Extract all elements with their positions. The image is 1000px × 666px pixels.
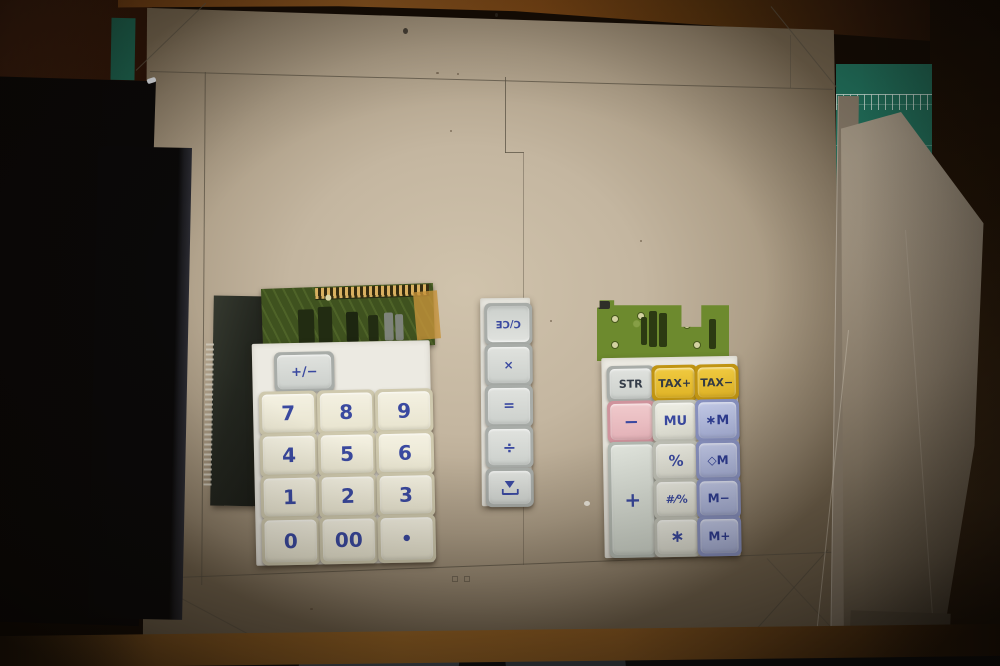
speck — [550, 320, 552, 322]
key-label: 9 — [378, 391, 431, 430]
speck — [450, 130, 452, 132]
speck — [495, 13, 498, 17]
key-label: × — [488, 347, 530, 383]
key-label: 00 — [322, 518, 375, 561]
key-minus: − — [607, 400, 656, 443]
keypad-left: +/− 7 8 9 4 5 6 1 2 3 0 00 • — [252, 340, 435, 566]
keypad-right: STR TAX+ TAX− − MU ∗M + % ◇M #⁄% M− ∗ M+ — [601, 356, 740, 558]
key-label: • — [380, 517, 433, 560]
key-label: #⁄% — [656, 482, 697, 517]
pcb-slot — [659, 313, 667, 347]
key-str: STR — [606, 365, 655, 402]
chip — [395, 314, 404, 340]
key-00: 00 — [319, 515, 378, 564]
pcb-slot — [709, 319, 716, 349]
key-label: 1 — [264, 478, 317, 517]
key-label: + — [611, 444, 655, 555]
speck — [310, 608, 313, 610]
speck — [452, 576, 458, 582]
key-2: 2 — [318, 473, 377, 518]
key-1: 1 — [260, 475, 319, 520]
key-m-plus: M+ — [697, 516, 742, 557]
speck — [464, 576, 470, 582]
key-asterisk-m: ∗M — [695, 399, 740, 442]
key-equals: = — [485, 385, 533, 427]
key-8: 8 — [317, 389, 376, 434]
speck — [640, 240, 642, 242]
key-tax-minus: TAX− — [694, 364, 739, 401]
key-percent: % — [653, 441, 700, 482]
key-label: MU — [655, 403, 696, 440]
key-label: ∗ — [657, 520, 698, 555]
key-label: 4 — [263, 436, 316, 475]
key-plus-minus: +/− — [274, 351, 335, 392]
chip — [318, 307, 333, 343]
key-m-minus: M− — [696, 478, 741, 519]
key-decimal: • — [377, 514, 436, 563]
display-connector-pins — [204, 343, 214, 485]
key-label: 0 — [264, 520, 317, 563]
key-label: +/− — [277, 354, 332, 389]
speck — [457, 73, 459, 75]
key-9: 9 — [375, 388, 434, 433]
speck — [403, 28, 408, 34]
key-4: 4 — [260, 433, 319, 478]
chip — [346, 312, 359, 342]
pencil-line — [505, 77, 506, 153]
pencil-line — [790, 35, 791, 88]
paper-feed-icon — [489, 471, 531, 504]
kapton-tape — [413, 290, 441, 340]
key-label: M+ — [700, 519, 739, 554]
lcd-panel-edge — [88, 146, 192, 620]
pencil-line — [505, 152, 524, 153]
key-label: 6 — [379, 433, 432, 472]
key-paper-feed — [486, 468, 534, 507]
key-label: % — [656, 444, 697, 479]
key-label: 5 — [321, 434, 374, 473]
key-7: 7 — [259, 391, 318, 436]
key-multiply: × — [484, 344, 532, 386]
key-label: 8 — [320, 392, 373, 431]
key-label: M− — [699, 481, 738, 516]
pcb-slot — [641, 317, 647, 345]
key-label: C/CE — [487, 306, 529, 342]
photo-workbench-scene: +/− 7 8 9 4 5 6 1 2 3 0 00 • C/CE — [0, 0, 1000, 666]
key-label: TAX− — [697, 367, 736, 398]
key-strip-center: C/CE × = ÷ — [480, 298, 532, 506]
key-label: = — [488, 388, 530, 424]
key-3: 3 — [376, 472, 435, 517]
pcb-via — [325, 295, 331, 301]
key-clear: C/CE — [484, 303, 532, 345]
keypad-pcb-right — [597, 299, 729, 361]
key-tax-plus: TAX+ — [651, 365, 698, 402]
pcb-hole — [693, 341, 701, 349]
key-mu: MU — [652, 400, 699, 443]
speck — [436, 72, 439, 74]
key-label: 7 — [262, 394, 315, 433]
key-label: ∗M — [698, 402, 737, 439]
pcb-hole — [611, 341, 619, 349]
pcb-slot — [649, 311, 657, 347]
key-6: 6 — [376, 430, 435, 475]
key-plus: + — [608, 441, 658, 558]
key-label: 3 — [379, 475, 432, 514]
key-5: 5 — [318, 431, 377, 476]
cutting-mat-corner — [110, 18, 135, 80]
key-label: ◇M — [699, 443, 738, 478]
key-0: 0 — [261, 517, 320, 566]
speck — [584, 501, 590, 506]
key-divide: ÷ — [485, 426, 533, 468]
chip — [368, 315, 379, 341]
key-diamond-m: ◇M — [696, 440, 741, 481]
key-asterisk: ∗ — [654, 517, 701, 558]
pcb-hole — [611, 315, 619, 323]
key-label: ÷ — [488, 429, 530, 465]
key-label: TAX+ — [654, 368, 695, 399]
connector — [598, 301, 610, 309]
key-label: 2 — [322, 476, 375, 515]
key-label: − — [610, 403, 653, 440]
chip — [298, 309, 315, 344]
key-label: STR — [609, 368, 652, 399]
chip — [384, 312, 394, 340]
key-hash-percent: #⁄% — [653, 479, 700, 520]
